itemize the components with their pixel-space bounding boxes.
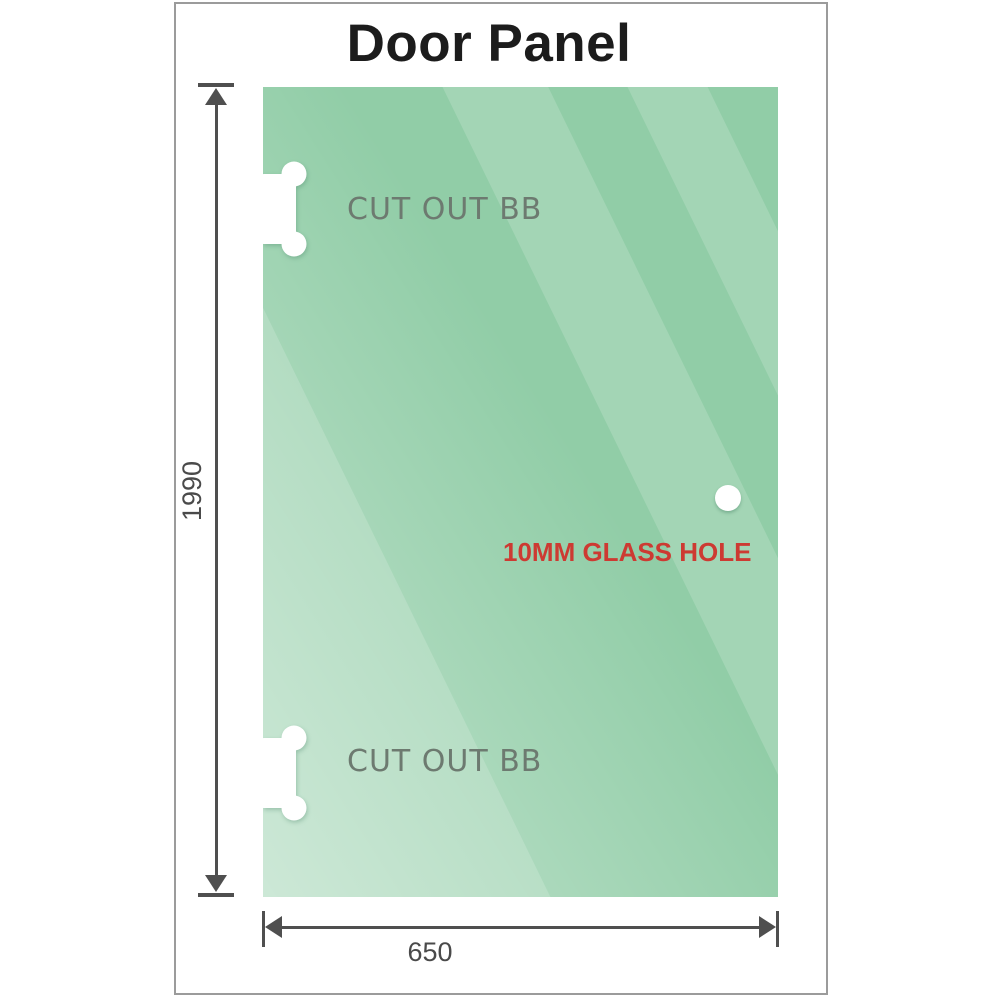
width-dim-right-tick [776, 911, 779, 947]
width-dim-arrow-right-icon [759, 916, 776, 938]
hinge-cutout-bottom [263, 723, 313, 823]
width-dimension-value: 650 [398, 937, 462, 968]
height-dim-top-cap [198, 83, 234, 87]
height-dimension-value: 1990 [177, 431, 207, 551]
glass-door-panel: CUT OUT BB CUT OUT BB 10MM GLASS HOLE [263, 87, 778, 897]
height-dim-arrow-down-icon [205, 875, 227, 892]
drawing-title: Door Panel [175, 13, 803, 74]
hinge-cutout-top [263, 159, 313, 259]
glass-hole-label: 10MM GLASS HOLE [503, 537, 723, 568]
cutout-label-bottom: CUT OUT BB [347, 744, 607, 779]
height-dim-bottom-cap [198, 893, 234, 897]
cutout-label-top: CUT OUT BB [347, 192, 607, 227]
glass-hole [715, 485, 741, 511]
width-dim-arrow-left-icon [265, 916, 282, 938]
height-dim-line [215, 100, 218, 878]
width-dim-line [281, 926, 760, 929]
